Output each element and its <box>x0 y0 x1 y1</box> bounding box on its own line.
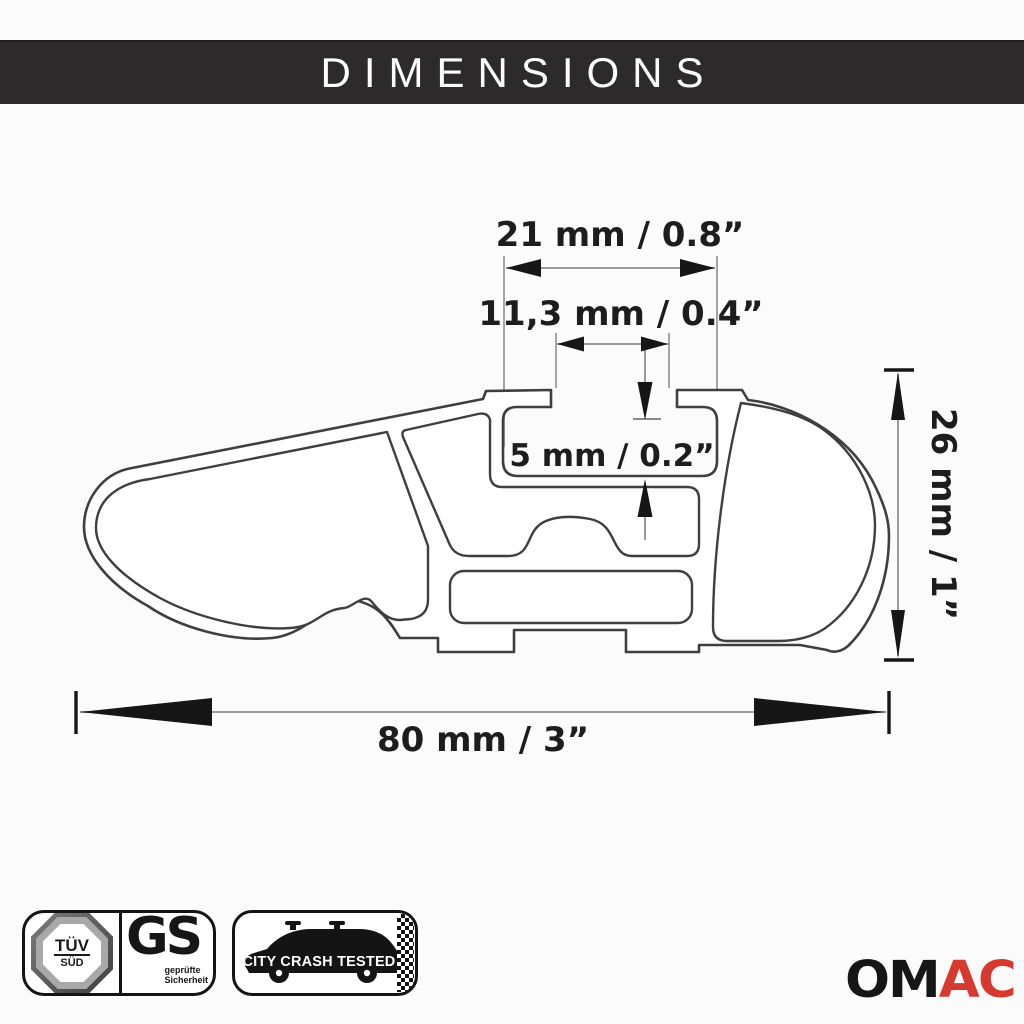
tuv-sud-icon: TÜV SÜD <box>31 912 113 994</box>
crossbar-profile-diagram: 21 mm / 0.8” 11,3 mm / 0.4” 5 mm / 0.2” … <box>0 0 1024 1024</box>
label-slot-depth: 5 mm / 0.2” <box>509 438 714 474</box>
sud-text: SÜD <box>60 958 83 969</box>
profile-cavities <box>96 403 875 641</box>
label-height: 26 mm / 1” <box>923 408 963 620</box>
checker-strip <box>397 914 414 992</box>
label-top-width: 21 mm / 0.8” <box>496 215 745 255</box>
omac-logo-ac: AC <box>939 952 1015 1010</box>
omac-logo-om: OM <box>845 952 939 1010</box>
tuv-text: TÜV <box>54 937 90 956</box>
gs-subtext: geprüfte Sicherheit <box>164 965 208 985</box>
gs-mark: GS <box>126 910 200 967</box>
car-silhouette-icon <box>235 913 415 993</box>
label-slot-width: 11,3 mm / 0.4” <box>478 294 763 334</box>
extension-lines <box>504 256 717 447</box>
omac-logo: OMAC <box>845 957 1015 1005</box>
crash-tested-label: CITY CRASH TESTED <box>237 954 401 970</box>
city-crash-tested-badge: CITY CRASH TESTED <box>232 910 418 996</box>
gs-cell: GS geprüfte Sicherheit <box>122 913 213 993</box>
tuv-octagon-cell: TÜV SÜD <box>25 913 119 993</box>
label-total-width: 80 mm / 3” <box>377 720 589 760</box>
tuv-gs-badge: TÜV SÜD GS geprüfte Sicherheit <box>22 910 216 996</box>
